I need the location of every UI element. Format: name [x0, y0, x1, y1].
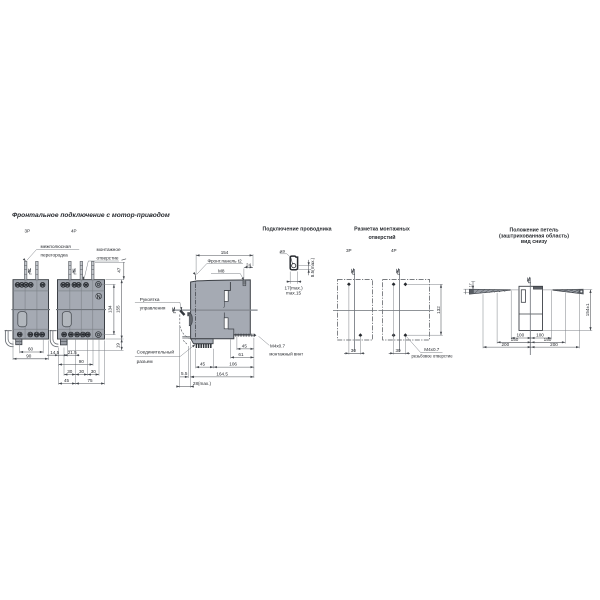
- svg-text:М8: М8: [218, 269, 225, 274]
- svg-text:30: 30: [351, 348, 357, 353]
- svg-text:монтажный винт: монтажный винт: [269, 351, 303, 356]
- svg-text:max.15: max.15: [286, 290, 302, 295]
- svg-text:154±1: 154±1: [585, 303, 590, 316]
- svg-text:N: N: [97, 294, 101, 300]
- svg-text:ø9: ø9: [280, 249, 286, 254]
- svg-text:30: 30: [396, 348, 402, 353]
- svg-text:132: 132: [436, 306, 441, 314]
- svg-text:61: 61: [238, 352, 244, 357]
- svg-text:резьбовое отверстие: резьбовое отверстие: [412, 353, 454, 358]
- svg-text:М4х0.7: М4х0.7: [270, 343, 286, 348]
- svg-text:45: 45: [200, 362, 206, 367]
- svg-text:24: 24: [246, 262, 252, 267]
- svg-text:30: 30: [91, 369, 97, 374]
- svg-text:21.5: 21.5: [68, 350, 77, 355]
- svg-text:14.5: 14.5: [50, 350, 59, 355]
- svg-text:Фронтальное подключение с мото: Фронтальное подключение с мотор-приводом: [12, 211, 170, 219]
- svg-text:3P: 3P: [25, 229, 31, 234]
- svg-text:вид снизу: вид снизу: [521, 239, 547, 245]
- svg-text:Фронт.панель t2: Фронт.панель t2: [208, 258, 243, 263]
- svg-text:45: 45: [242, 344, 248, 349]
- svg-text:75: 75: [88, 378, 94, 383]
- svg-text:перегородка: перегородка: [41, 253, 69, 258]
- svg-text:45: 45: [64, 378, 70, 383]
- svg-text:30: 30: [67, 369, 73, 374]
- svg-text:Соединительный: Соединительный: [137, 348, 175, 354]
- svg-text:межполюсная: межполюсная: [41, 244, 72, 249]
- svg-text:164.5: 164.5: [216, 372, 228, 377]
- svg-text:отверстий: отверстий: [368, 234, 395, 241]
- svg-text:отверстие: отверстие: [97, 256, 119, 261]
- svg-text:разъем: разъем: [137, 359, 153, 364]
- svg-text:8.5(max.): 8.5(max.): [310, 257, 315, 277]
- svg-text:90: 90: [79, 359, 85, 364]
- svg-text:154: 154: [221, 250, 229, 255]
- svg-text:106: 106: [229, 362, 237, 367]
- svg-text:4P: 4P: [71, 229, 77, 234]
- svg-text:200: 200: [501, 342, 509, 347]
- svg-text:19: 19: [116, 343, 121, 349]
- svg-text:M4x0.7: M4x0.7: [424, 347, 440, 352]
- svg-text:монтажное: монтажное: [97, 247, 121, 252]
- svg-text:Разметка монтажных: Разметка монтажных: [354, 227, 410, 233]
- svg-text:управления: управления: [140, 305, 166, 310]
- svg-text:28(max.): 28(max.): [193, 381, 212, 386]
- svg-text:200: 200: [550, 342, 558, 347]
- svg-text:60: 60: [28, 347, 34, 352]
- svg-text:30: 30: [79, 369, 85, 374]
- svg-text:Подключение проводника: Подключение проводника: [263, 227, 332, 233]
- svg-text:90: 90: [26, 353, 32, 358]
- svg-text:155: 155: [116, 305, 121, 313]
- svg-text:3P: 3P: [346, 248, 352, 253]
- svg-text:Рукоятка: Рукоятка: [140, 297, 160, 302]
- svg-text:5.5: 5.5: [181, 371, 188, 376]
- svg-text:4P: 4P: [391, 248, 397, 253]
- svg-text:150: 150: [511, 337, 519, 342]
- svg-text:134: 134: [108, 305, 113, 313]
- svg-text:17: 17: [469, 283, 473, 287]
- svg-text:47: 47: [117, 267, 122, 273]
